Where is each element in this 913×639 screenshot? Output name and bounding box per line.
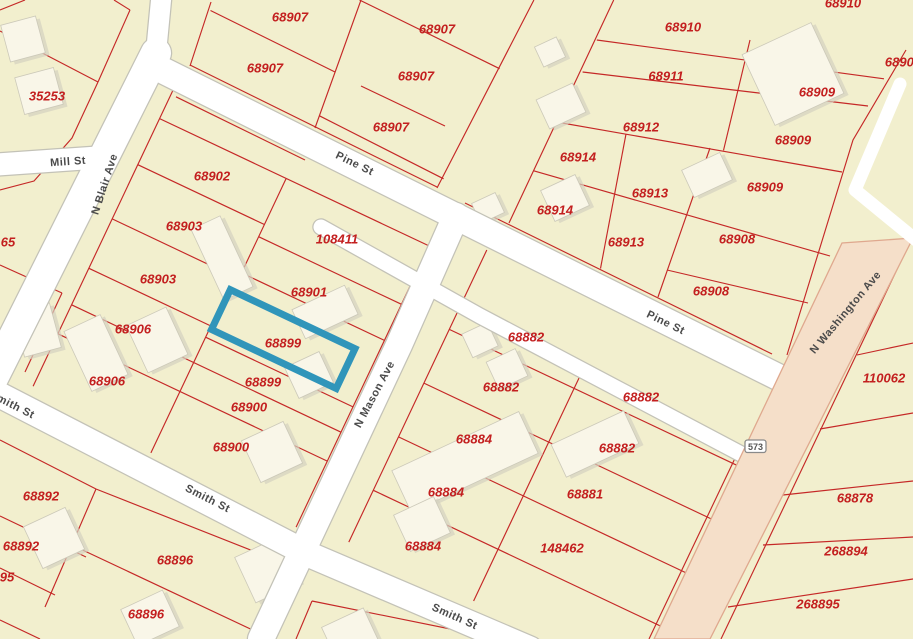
svg-text:68902: 68902: [194, 169, 231, 184]
svg-text:95: 95: [0, 570, 15, 585]
svg-text:268895: 268895: [795, 597, 840, 612]
svg-text:68884: 68884: [428, 485, 465, 500]
svg-text:68913: 68913: [632, 186, 669, 201]
svg-text:68903: 68903: [166, 219, 203, 234]
svg-text:68908: 68908: [719, 232, 756, 247]
svg-text:68900: 68900: [213, 440, 250, 455]
svg-text:573: 573: [748, 442, 763, 452]
svg-text:110062: 110062: [863, 371, 906, 386]
svg-text:68896: 68896: [128, 607, 165, 622]
svg-text:68907: 68907: [272, 10, 309, 25]
svg-text:268894: 268894: [823, 544, 868, 559]
svg-text:68909: 68909: [775, 133, 812, 148]
svg-text:68882: 68882: [599, 441, 636, 456]
svg-text:68878: 68878: [837, 491, 874, 506]
svg-text:68892: 68892: [3, 539, 40, 554]
svg-text:68896: 68896: [157, 553, 194, 568]
svg-text:68882: 68882: [508, 330, 545, 345]
svg-text:68884: 68884: [405, 539, 442, 554]
svg-text:68913: 68913: [608, 235, 645, 250]
svg-text:68892: 68892: [23, 489, 60, 504]
svg-text:65: 65: [1, 235, 16, 250]
svg-text:68884: 68884: [456, 432, 493, 447]
svg-text:148462: 148462: [540, 541, 584, 556]
svg-text:68906: 68906: [115, 322, 152, 337]
svg-text:68914: 68914: [537, 203, 574, 218]
svg-text:68908: 68908: [693, 284, 730, 299]
svg-text:68882: 68882: [623, 390, 660, 405]
svg-text:68882: 68882: [483, 380, 520, 395]
svg-text:68901: 68901: [291, 285, 327, 300]
svg-text:68881: 68881: [567, 487, 603, 502]
svg-text:35253: 35253: [29, 89, 66, 104]
svg-text:68914: 68914: [560, 150, 597, 165]
svg-text:68912: 68912: [623, 120, 660, 135]
svg-text:68900: 68900: [231, 400, 268, 415]
svg-text:68910: 68910: [825, 0, 862, 11]
svg-text:68911: 68911: [648, 69, 683, 84]
svg-text:68909: 68909: [885, 55, 913, 70]
svg-text:68899: 68899: [265, 336, 302, 351]
svg-text:68910: 68910: [665, 20, 702, 35]
svg-text:68907: 68907: [247, 61, 284, 76]
svg-text:68899: 68899: [245, 375, 282, 390]
svg-text:68909: 68909: [747, 180, 784, 195]
svg-text:68907: 68907: [373, 120, 410, 135]
svg-text:68907: 68907: [398, 69, 435, 84]
svg-text:68907: 68907: [419, 22, 456, 37]
svg-text:108411: 108411: [316, 232, 358, 247]
svg-text:68906: 68906: [89, 374, 126, 389]
svg-text:Mill St: Mill St: [50, 155, 87, 169]
svg-text:68909: 68909: [799, 85, 836, 100]
svg-text:68903: 68903: [140, 272, 177, 287]
